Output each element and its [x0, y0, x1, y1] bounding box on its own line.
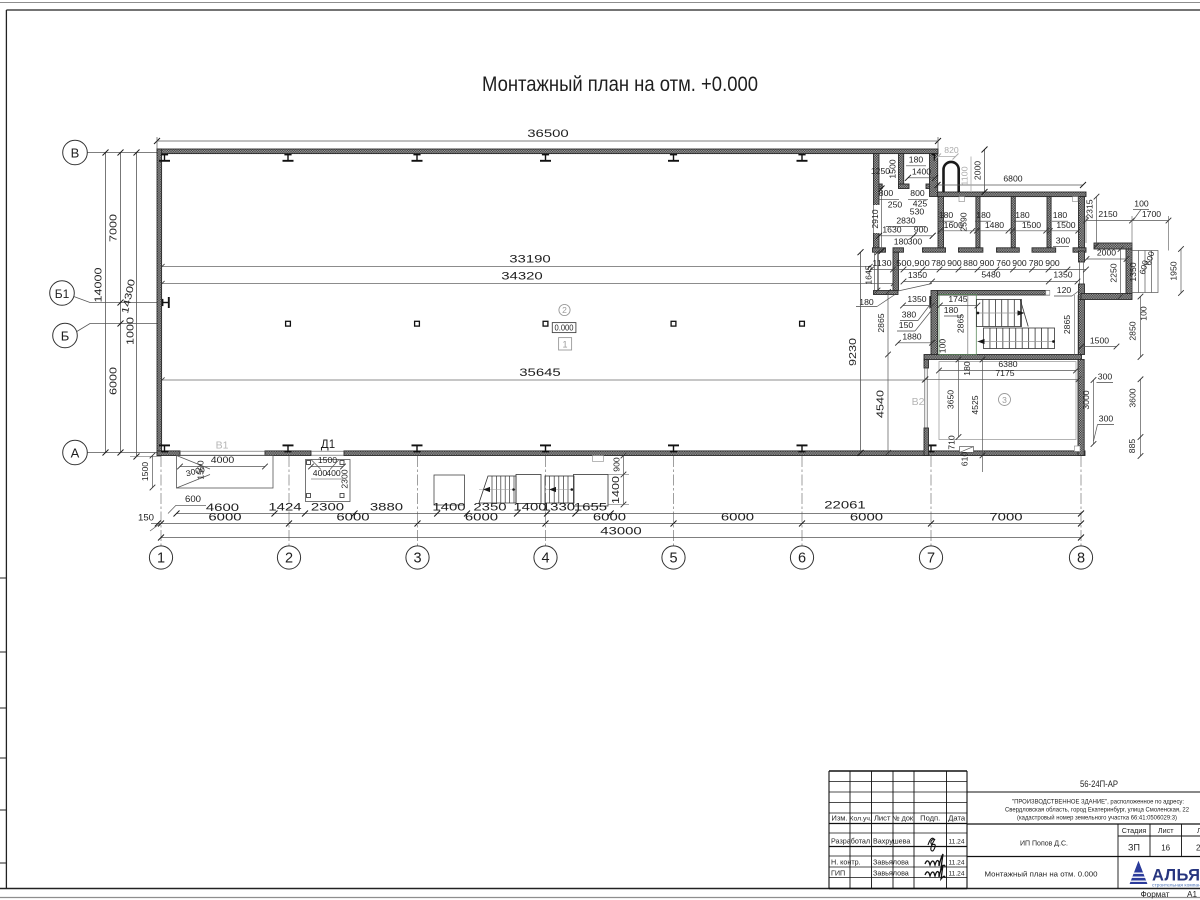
- svg-text:3650: 3650: [947, 389, 956, 409]
- svg-text:2000: 2000: [974, 160, 983, 180]
- svg-text:11.24: 11.24: [949, 860, 965, 867]
- svg-text:Б: Б: [61, 328, 70, 343]
- svg-text:180: 180: [859, 298, 874, 307]
- svg-text:250: 250: [888, 201, 903, 210]
- svg-text:1400: 1400: [912, 168, 932, 177]
- svg-text:11.24: 11.24: [949, 838, 965, 845]
- svg-text:900: 900: [1012, 259, 1027, 268]
- svg-text:300: 300: [1056, 237, 1071, 246]
- svg-text:1645: 1645: [865, 265, 874, 285]
- svg-text:1500: 1500: [1090, 337, 1110, 346]
- svg-text:100: 100: [939, 338, 948, 353]
- svg-text:6000: 6000: [850, 512, 883, 524]
- svg-text:3000: 3000: [1082, 390, 1091, 410]
- svg-text:43000: 43000: [600, 526, 642, 538]
- svg-text:900: 900: [947, 259, 962, 268]
- svg-text:710: 710: [948, 435, 957, 450]
- svg-text:Монтажный план на отм. 0.000: Монтажный план на отм. 0.000: [985, 870, 1098, 879]
- svg-text:820: 820: [944, 146, 959, 155]
- svg-text:180: 180: [939, 211, 954, 220]
- svg-text:180: 180: [909, 156, 924, 165]
- svg-text:180: 180: [894, 238, 909, 247]
- svg-text:33190: 33190: [509, 254, 551, 266]
- svg-text:(кадастровый номер земельного: (кадастровый номер земельного участка 66…: [1017, 814, 1177, 822]
- svg-text:1500: 1500: [1022, 221, 1042, 230]
- svg-text:1700: 1700: [1142, 210, 1162, 219]
- svg-text:1424: 1424: [268, 502, 301, 514]
- svg-text:4: 4: [541, 551, 549, 567]
- svg-text:"ПРОИЗВОДСТВЕННОЕ ЗДАНИЕ", рас: "ПРОИЗВОДСТВЕННОЕ ЗДАНИЕ", расположенное…: [1012, 799, 1184, 806]
- svg-text:Подп.: Подп.: [920, 814, 940, 823]
- svg-text:5: 5: [669, 551, 677, 567]
- svg-text:16: 16: [1161, 844, 1170, 853]
- svg-text:3: 3: [1002, 395, 1007, 405]
- svg-text:8: 8: [1077, 551, 1085, 567]
- svg-text:2315: 2315: [1086, 199, 1095, 219]
- svg-text:В: В: [71, 146, 80, 161]
- svg-text:1950: 1950: [1170, 261, 1179, 281]
- svg-text:4540: 4540: [876, 389, 887, 418]
- svg-text:4525: 4525: [971, 395, 980, 415]
- svg-text:1: 1: [157, 551, 165, 567]
- svg-text:760: 760: [996, 259, 1011, 268]
- svg-text:24: 24: [1196, 844, 1200, 853]
- svg-text:6000: 6000: [593, 512, 626, 524]
- svg-text:300: 300: [1098, 373, 1113, 382]
- svg-text:7175: 7175: [995, 369, 1015, 378]
- svg-text:7000: 7000: [109, 213, 120, 242]
- svg-text:7000: 7000: [989, 512, 1022, 524]
- svg-text:2250: 2250: [1110, 263, 1119, 283]
- svg-text:150: 150: [899, 321, 914, 330]
- svg-text:6800: 6800: [1003, 175, 1023, 184]
- svg-text:А: А: [71, 446, 80, 461]
- svg-text:500,900: 500,900: [896, 259, 930, 268]
- svg-text:100: 100: [1134, 200, 1149, 209]
- svg-text:Лист: Лист: [1158, 826, 1174, 835]
- svg-text:610: 610: [961, 451, 970, 466]
- svg-text:1500: 1500: [889, 159, 898, 179]
- svg-text:Завьялова: Завьялова: [873, 869, 909, 878]
- svg-text:1350: 1350: [908, 271, 928, 280]
- svg-text:Вахрушева: Вахрушева: [873, 836, 910, 845]
- svg-text:2: 2: [562, 305, 567, 315]
- svg-text:180: 180: [944, 306, 959, 315]
- svg-text:Б1: Б1: [55, 287, 70, 301]
- svg-text:Кол.уч.: Кол.уч.: [850, 816, 872, 823]
- svg-text:1500: 1500: [1056, 221, 1076, 230]
- svg-text:1000: 1000: [126, 316, 137, 345]
- svg-text:3880: 3880: [370, 502, 403, 514]
- svg-text:2830: 2830: [896, 217, 916, 226]
- svg-text:1500: 1500: [197, 460, 206, 480]
- svg-text:180: 180: [1015, 211, 1030, 220]
- svg-text:34320: 34320: [501, 271, 543, 283]
- svg-text:900: 900: [980, 259, 995, 268]
- svg-text:6000: 6000: [336, 512, 369, 524]
- svg-text:180: 180: [976, 211, 991, 220]
- svg-text:Н. контр.: Н. контр.: [831, 858, 861, 867]
- svg-text:3600: 3600: [1129, 388, 1138, 408]
- svg-text:6: 6: [798, 551, 806, 567]
- svg-text:ГИП: ГИП: [831, 869, 845, 878]
- svg-text:ИП Попов Д.С.: ИП Попов Д.С.: [1020, 839, 1068, 848]
- svg-text:180: 180: [963, 361, 972, 376]
- svg-text:2865: 2865: [957, 313, 966, 333]
- svg-text:0.000: 0.000: [555, 324, 574, 333]
- svg-text:1350: 1350: [907, 295, 927, 304]
- svg-text:300: 300: [908, 238, 923, 247]
- svg-text:5480: 5480: [981, 271, 1001, 280]
- svg-text:1745: 1745: [948, 295, 968, 304]
- svg-text:380: 380: [902, 311, 917, 320]
- svg-text:400: 400: [326, 469, 341, 478]
- svg-text:900: 900: [1045, 259, 1060, 268]
- svg-text:1350: 1350: [1129, 262, 1138, 282]
- svg-text:6000: 6000: [465, 512, 498, 524]
- svg-text:А1: А1: [1187, 890, 1197, 899]
- svg-text:3: 3: [413, 551, 421, 567]
- svg-text:6000: 6000: [109, 366, 120, 395]
- svg-text:22061: 22061: [824, 500, 866, 512]
- svg-text:880: 880: [963, 259, 978, 268]
- svg-text:№ док.: № док.: [892, 814, 915, 823]
- svg-text:Завьялова: Завьялова: [873, 858, 909, 867]
- svg-text:2590: 2590: [960, 212, 969, 232]
- svg-text:36500: 36500: [527, 128, 569, 140]
- svg-text:1400: 1400: [611, 475, 622, 504]
- svg-text:АЛЬЯНС: АЛЬЯНС: [1152, 867, 1200, 885]
- svg-text:1630: 1630: [882, 226, 902, 235]
- svg-text:Лист: Лист: [874, 814, 891, 823]
- svg-text:Разработал: Разработал: [831, 836, 870, 845]
- svg-text:300: 300: [1099, 415, 1114, 424]
- svg-text:1880: 1880: [902, 333, 922, 342]
- svg-text:2865: 2865: [877, 313, 886, 333]
- svg-text:В2: В2: [912, 396, 925, 408]
- svg-text:1100: 1100: [961, 166, 970, 186]
- svg-text:2: 2: [285, 551, 293, 567]
- svg-text:ЗП: ЗП: [1128, 843, 1140, 853]
- svg-text:1350: 1350: [1053, 271, 1073, 280]
- svg-text:600: 600: [185, 494, 201, 504]
- svg-text:2865: 2865: [1063, 314, 1072, 334]
- svg-text:4000: 4000: [211, 455, 235, 465]
- svg-text:Д1: Д1: [321, 439, 335, 451]
- svg-text:780: 780: [931, 259, 946, 268]
- svg-text:строительная компания: строительная компания: [1152, 883, 1200, 888]
- svg-text:2300: 2300: [341, 469, 350, 489]
- svg-text:2850: 2850: [1129, 321, 1138, 341]
- svg-text:11.24: 11.24: [949, 871, 965, 878]
- svg-text:Изм.: Изм.: [831, 814, 847, 823]
- svg-text:150: 150: [138, 513, 154, 523]
- svg-text:6000: 6000: [208, 512, 241, 524]
- svg-text:14000: 14000: [94, 267, 105, 303]
- svg-text:900: 900: [613, 457, 622, 472]
- svg-text:2150: 2150: [1098, 210, 1118, 219]
- svg-text:1130: 1130: [872, 259, 892, 268]
- svg-text:2000: 2000: [1097, 249, 1117, 258]
- svg-text:7: 7: [927, 551, 935, 567]
- svg-text:9230: 9230: [848, 337, 859, 366]
- svg-text:180: 180: [1053, 211, 1068, 220]
- svg-text:6380: 6380: [998, 360, 1018, 369]
- svg-text:120: 120: [1057, 286, 1072, 295]
- svg-text:2910: 2910: [871, 209, 880, 229]
- svg-text:1: 1: [562, 339, 567, 349]
- svg-text:530: 530: [910, 208, 925, 217]
- svg-text:885: 885: [1128, 438, 1137, 453]
- svg-text:В1: В1: [216, 440, 229, 452]
- svg-text:Стадия: Стадия: [1122, 826, 1147, 835]
- svg-text:1480: 1480: [985, 221, 1005, 230]
- svg-text:780: 780: [1029, 259, 1044, 268]
- svg-text:6000: 6000: [721, 512, 754, 524]
- svg-text:800: 800: [910, 189, 925, 198]
- svg-text:56-24П-АР: 56-24П-АР: [1080, 779, 1118, 789]
- svg-text:35645: 35645: [519, 367, 561, 379]
- svg-text:1400: 1400: [432, 502, 465, 514]
- svg-text:Монтажный план на отм. +0.000: Монтажный план на отм. +0.000: [482, 72, 758, 96]
- svg-text:Дата: Дата: [948, 814, 966, 823]
- svg-text:Формат: Формат: [1140, 890, 1169, 899]
- svg-text:1330: 1330: [542, 502, 575, 514]
- svg-text:800: 800: [879, 189, 894, 198]
- svg-text:1500: 1500: [141, 461, 150, 481]
- svg-text:Свердловская область, город Ек: Свердловская область, город Екатеринбург…: [1005, 806, 1189, 814]
- svg-text:1500: 1500: [318, 456, 338, 465]
